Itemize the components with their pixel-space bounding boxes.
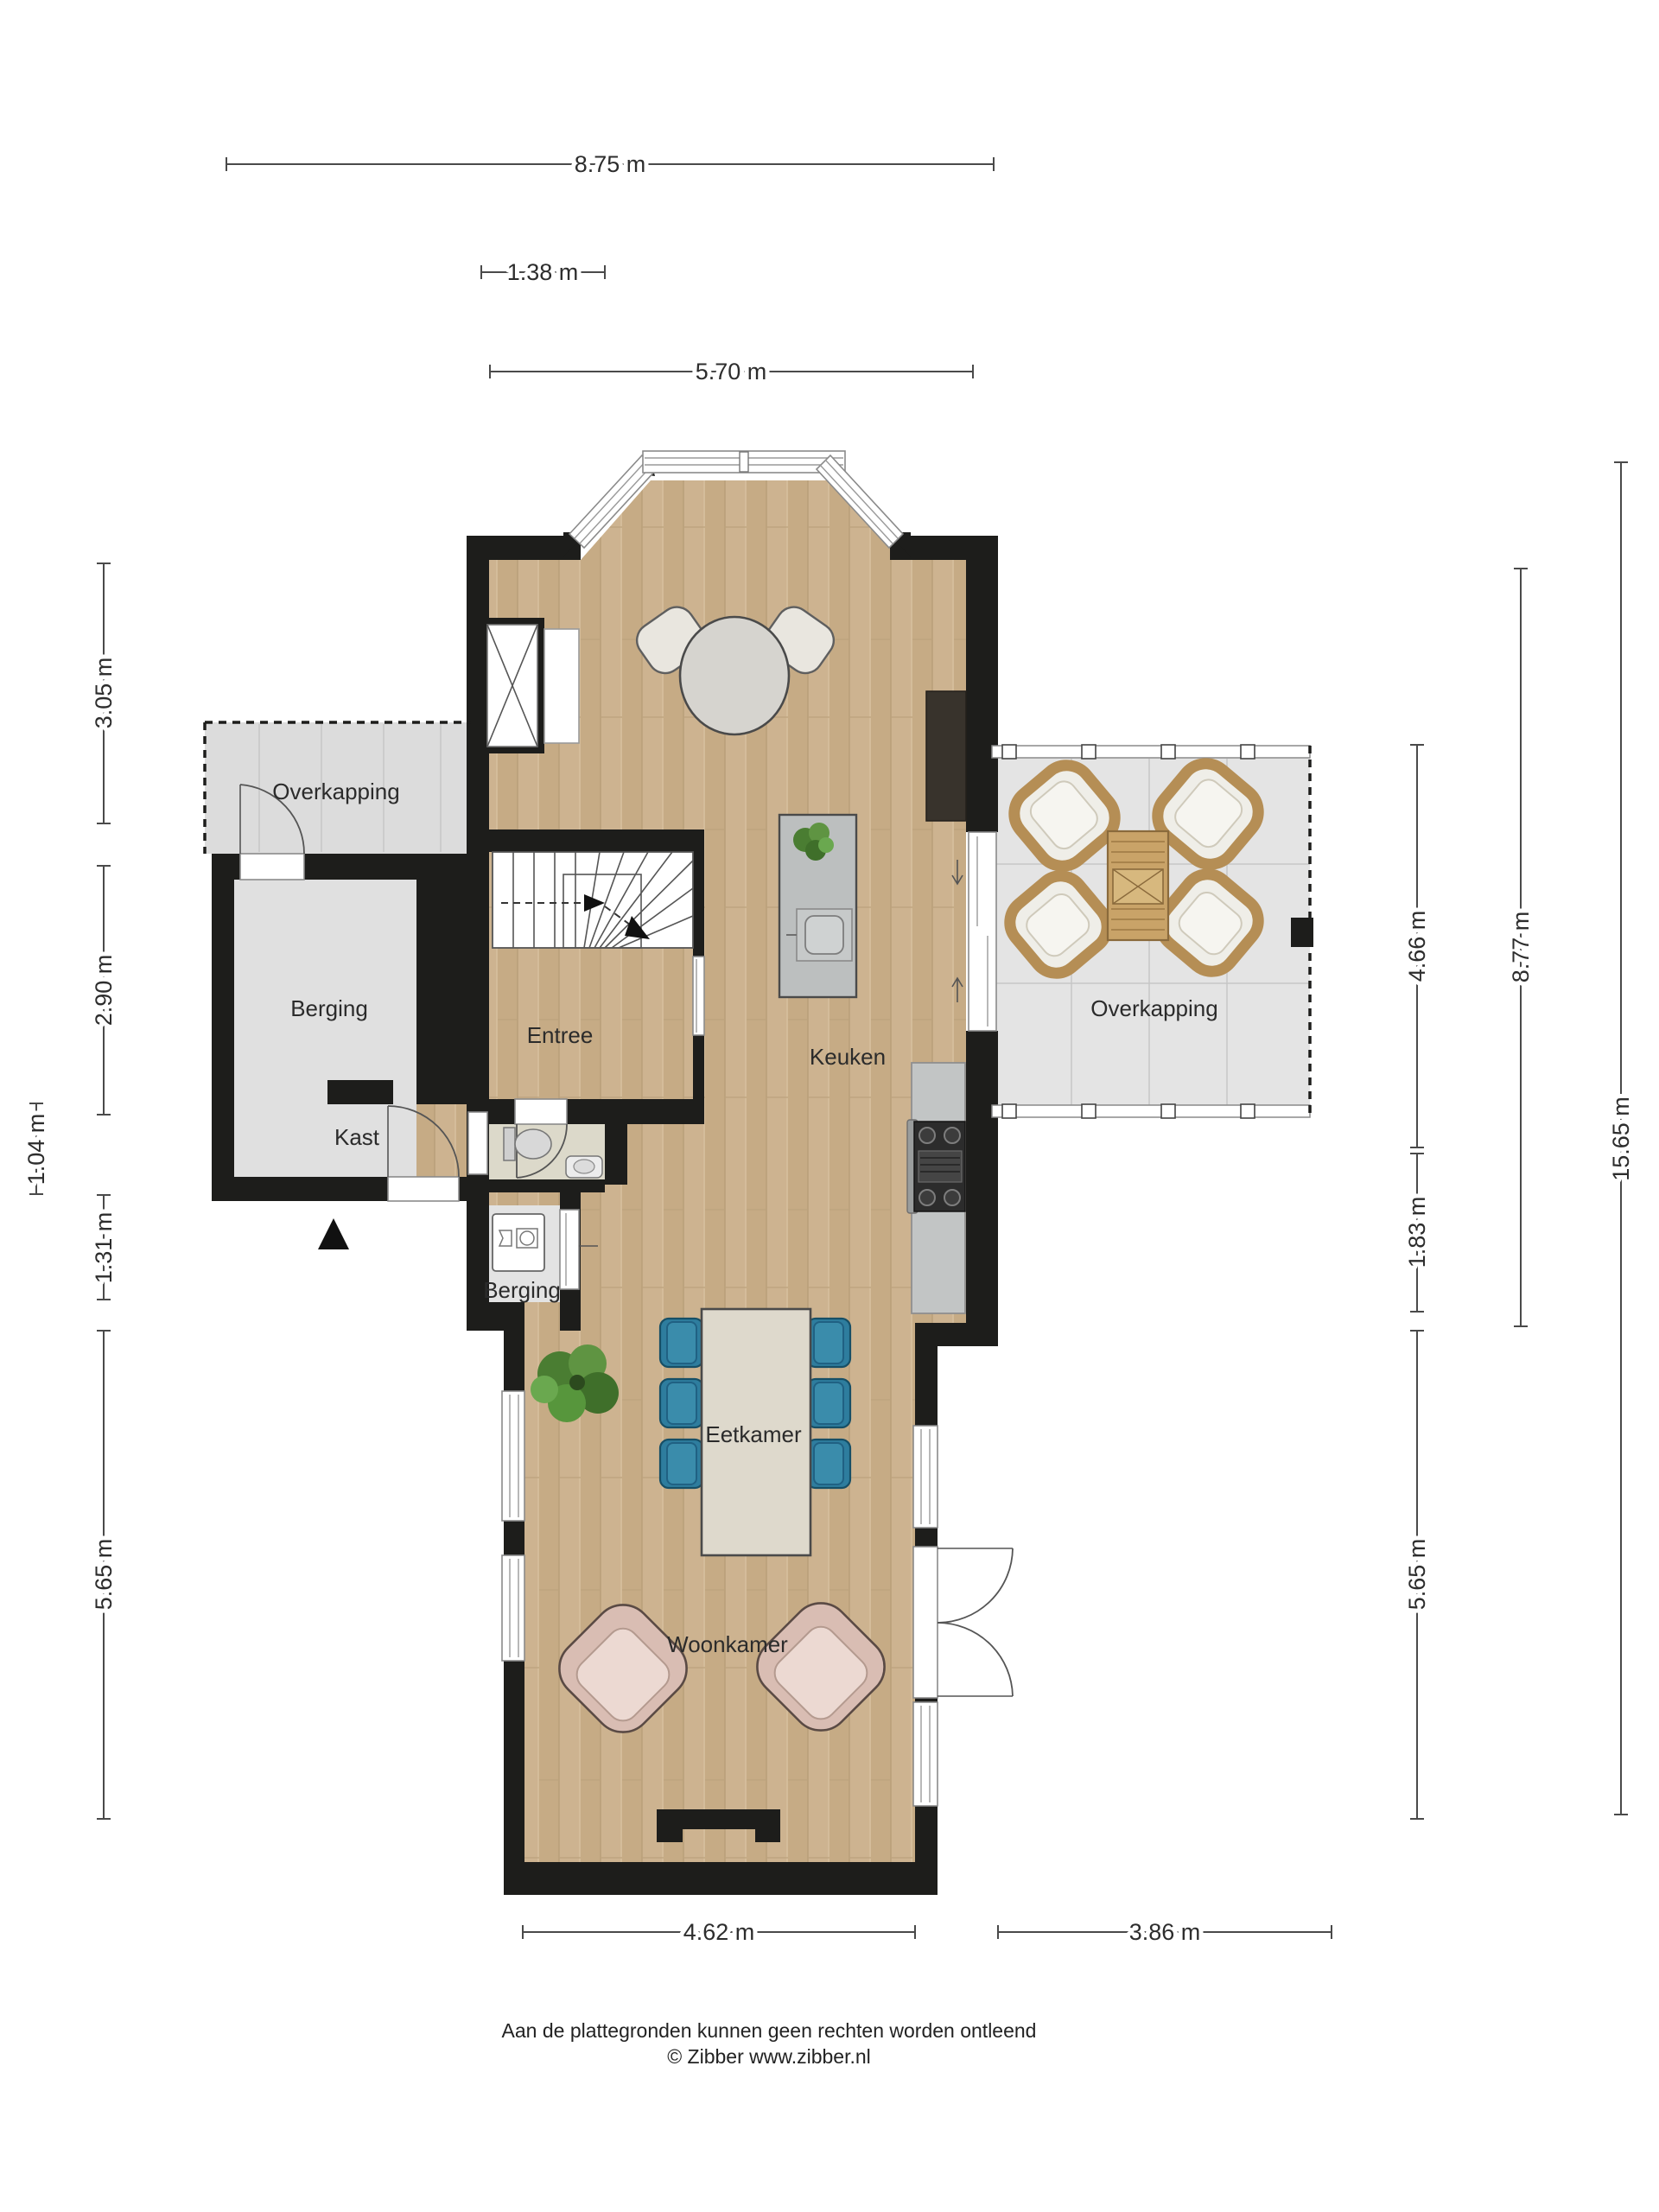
dimension-left-565: 5.65 m bbox=[91, 1331, 117, 1819]
dimension-left-305: 3.05 m bbox=[91, 563, 117, 823]
window-woonkamer-left-lower bbox=[502, 1555, 524, 1661]
dimension-left-290: 2.90 m bbox=[91, 866, 117, 1115]
dimension-right-466: 4.66 m bbox=[1404, 745, 1430, 1147]
svg-text:2.90 m: 2.90 m bbox=[91, 955, 117, 1027]
footer-credit: © Zibber www.zibber.nl bbox=[667, 2045, 871, 2068]
kitchen-counter bbox=[907, 1063, 965, 1313]
window-woonkamer-left-upper bbox=[502, 1391, 524, 1521]
dimension-right-183: 1.83 m bbox=[1404, 1154, 1430, 1312]
svg-text:1.38 m: 1.38 m bbox=[507, 259, 579, 285]
dimension-top-875: 8.75 m bbox=[226, 151, 994, 177]
cabinet bbox=[544, 629, 579, 743]
dimension-right-877: 8.77 m bbox=[1508, 569, 1534, 1326]
svg-text:5.70 m: 5.70 m bbox=[696, 359, 767, 385]
bay-window-top bbox=[643, 451, 845, 473]
dimension-right-565: 5.65 m bbox=[1404, 1331, 1430, 1819]
dimension-left-104: 1.04 m bbox=[23, 1103, 49, 1194]
svg-text:15.65 m: 15.65 m bbox=[1608, 1096, 1634, 1181]
toilet-icon bbox=[504, 1128, 551, 1160]
room-label-overkapping-left: Overkapping bbox=[272, 779, 399, 804]
svg-text:5.65 m: 5.65 m bbox=[1404, 1539, 1430, 1611]
floor-plan-canvas: Overkapping Berging Kast Entree Keuken O… bbox=[0, 0, 1659, 2212]
kitchen-island bbox=[779, 815, 856, 997]
dimension-top-138: 1.38 m bbox=[481, 259, 605, 285]
berging-left-floor bbox=[234, 880, 416, 1177]
room-label-berging-small: Berging bbox=[483, 1277, 561, 1303]
dimension-right-1565: 15.65 m bbox=[1608, 462, 1634, 1815]
opening-entree-keuken bbox=[693, 957, 704, 1035]
svg-text:1.04 m: 1.04 m bbox=[23, 1114, 49, 1185]
counter-dark bbox=[926, 691, 966, 821]
room-label-berging-left: Berging bbox=[290, 995, 368, 1021]
dimension-bottom-462: 4.62 m bbox=[523, 1919, 915, 1945]
room-label-kast: Kast bbox=[334, 1124, 380, 1150]
window-eetkamer-right bbox=[913, 1426, 938, 1528]
room-label-keuken: Keuken bbox=[810, 1044, 886, 1070]
sink-icon bbox=[786, 909, 852, 961]
terrace-post bbox=[1291, 918, 1313, 947]
room-label-entree: Entree bbox=[527, 1022, 594, 1048]
room-label-eetkamer: Eetkamer bbox=[705, 1421, 802, 1447]
entrance-marker bbox=[318, 1218, 349, 1249]
sink-small-icon bbox=[566, 1156, 602, 1178]
stairs bbox=[493, 852, 693, 948]
svg-text:4.66 m: 4.66 m bbox=[1404, 911, 1430, 982]
svg-text:3.05 m: 3.05 m bbox=[91, 658, 117, 729]
terrace-table bbox=[1108, 831, 1168, 940]
footer-disclaimer: Aan de plattegronden kunnen geen rechten… bbox=[502, 2019, 1037, 2042]
cooktop-icon bbox=[907, 1120, 965, 1213]
dimension-top-570: 5.70 m bbox=[490, 359, 973, 385]
dimension-bottom-386: 3.86 m bbox=[998, 1919, 1332, 1945]
room-label-woonkamer: Woonkamer bbox=[667, 1631, 788, 1657]
round-table bbox=[680, 617, 789, 734]
french-doors bbox=[913, 1547, 1013, 1698]
svg-text:8.77 m: 8.77 m bbox=[1508, 912, 1534, 983]
window-woonkamer-right bbox=[913, 1702, 938, 1806]
room-label-overkapping-right: Overkapping bbox=[1090, 995, 1217, 1021]
svg-text:1.31 m: 1.31 m bbox=[91, 1212, 117, 1284]
svg-text:8.75 m: 8.75 m bbox=[575, 151, 646, 177]
dimension-left-131: 1.31 m bbox=[91, 1195, 117, 1300]
floor-plan-page: Overkapping Berging Kast Entree Keuken O… bbox=[0, 0, 1659, 2212]
built-in-closet bbox=[480, 618, 579, 753]
window-toilet bbox=[468, 1112, 487, 1174]
svg-text:4.62 m: 4.62 m bbox=[683, 1919, 755, 1945]
svg-text:1.83 m: 1.83 m bbox=[1404, 1197, 1430, 1268]
svg-text:5.65 m: 5.65 m bbox=[91, 1539, 117, 1611]
svg-text:3.86 m: 3.86 m bbox=[1129, 1919, 1201, 1945]
washing-machine bbox=[493, 1214, 544, 1271]
